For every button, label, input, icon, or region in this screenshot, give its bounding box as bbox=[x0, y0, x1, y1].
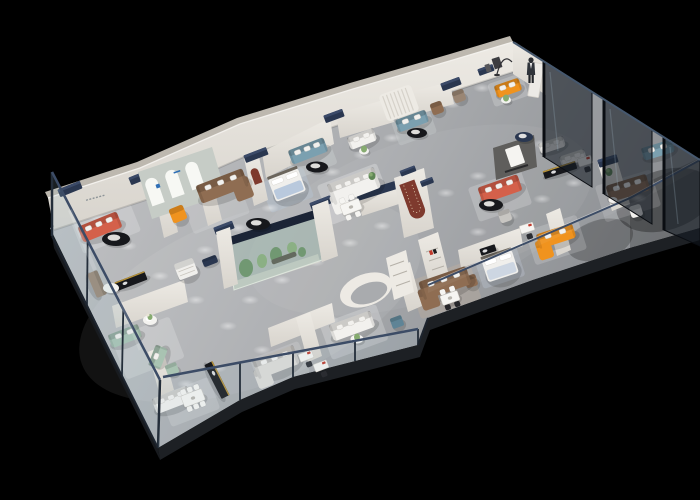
part bbox=[341, 239, 359, 248]
part bbox=[437, 189, 455, 198]
part bbox=[196, 246, 214, 255]
part bbox=[251, 220, 262, 225]
part bbox=[469, 228, 487, 237]
part bbox=[533, 195, 551, 204]
part bbox=[253, 346, 271, 355]
plant-mid bbox=[369, 172, 376, 180]
part bbox=[241, 296, 259, 305]
part bbox=[261, 204, 279, 213]
part bbox=[273, 276, 291, 285]
part bbox=[151, 272, 169, 281]
northeast-dark-glass-pane bbox=[664, 137, 700, 246]
part bbox=[469, 172, 487, 181]
part bbox=[219, 322, 237, 331]
part bbox=[187, 296, 205, 305]
part bbox=[411, 130, 420, 135]
part bbox=[108, 234, 121, 240]
part bbox=[373, 222, 391, 231]
part bbox=[532, 75, 534, 83]
part bbox=[484, 201, 495, 206]
render-stage bbox=[0, 0, 700, 500]
part bbox=[528, 75, 530, 83]
part bbox=[503, 95, 509, 102]
part bbox=[494, 74, 500, 76]
part bbox=[310, 163, 320, 168]
part bbox=[519, 134, 527, 139]
part bbox=[369, 173, 373, 177]
head bbox=[528, 57, 533, 62]
showroom-floorplan-3d-render bbox=[0, 0, 700, 500]
part bbox=[361, 146, 367, 153]
part bbox=[147, 314, 150, 317]
part bbox=[383, 134, 401, 143]
